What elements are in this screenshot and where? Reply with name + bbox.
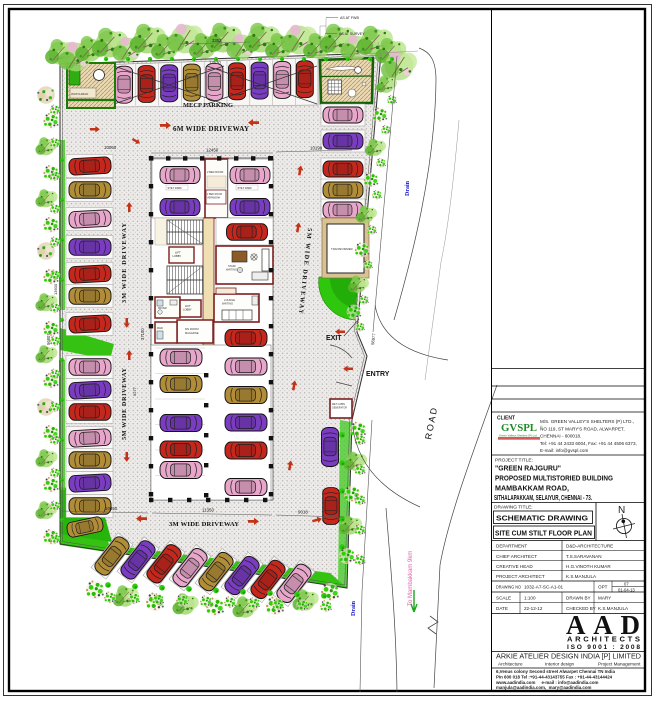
svg-text:5M WIDE DRIVEWAY: 5M WIDE DRIVEWAY <box>121 367 128 440</box>
svg-text:DEPARTMENT: DEPARTMENT <box>496 544 527 549</box>
svg-text:K.S.MANJULA: K.S.MANJULA <box>566 574 597 579</box>
svg-text:WAITING: WAITING <box>222 302 233 306</box>
svg-text:DN ROOM: DN ROOM <box>185 327 199 331</box>
svg-text:M/S. GREEN VALLEY'S SHELTERS: M/S. GREEN VALLEY'S SHELTERS (P) LTD., <box>540 419 634 424</box>
svg-text:3352: 3352 <box>212 38 222 43</box>
svg-text:D&D-ARCHITECTURE: D&D-ARCHITECTURE <box>566 544 613 549</box>
svg-text:T.S.SARAVANAN: T.S.SARAVANAN <box>566 554 602 559</box>
svg-text:11350: 11350 <box>202 508 214 513</box>
svg-text:2 BED ROOM: 2 BED ROOM <box>207 170 223 174</box>
svg-text:ARCHITECTS: ARCHITECTS <box>567 635 640 644</box>
svg-text:9277: 9277 <box>132 386 137 396</box>
svg-text:13500: 13500 <box>53 283 58 295</box>
svg-text:E-mail: info@gvspl.com: E-mail: info@gvspl.com <box>540 448 588 453</box>
svg-text:manjula@aadindia.com, mary@aa: manjula@aadindia.com, mary@aadindia.com <box>496 685 592 690</box>
svg-text:SITE CUM STILT FLOOR PLAN: SITE CUM STILT FLOOR PLAN <box>495 529 592 538</box>
svg-text:CHIEF ARCHITECT: CHIEF ARCHITECT <box>496 554 537 559</box>
svg-text:MAGAZINE: MAGAZINE <box>185 331 199 335</box>
svg-text:STILT PARK: STILT PARK <box>238 186 253 190</box>
svg-text:OPT: OPT <box>598 585 608 590</box>
svg-text:VERANDAH: VERANDAH <box>207 196 221 199</box>
svg-text:LIFT: LIFT <box>175 251 181 255</box>
svg-text:N: N <box>618 505 625 516</box>
svg-text:3M WIDE DRIVEWAY: 3M WIDE DRIVEWAY <box>121 222 128 303</box>
svg-text:CHENNAI - 600018.: CHENNAI - 600018. <box>540 434 581 439</box>
svg-text:STAFF: STAFF <box>228 264 236 268</box>
svg-text:LOBBY: LOBBY <box>173 254 182 258</box>
svg-text:H.G.VINOTH KUMAR: H.G.VINOTH KUMAR <box>566 564 611 569</box>
svg-text:GENERATOR: GENERATOR <box>332 406 347 409</box>
svg-text:DATE: DATE <box>496 606 508 611</box>
svg-text:LIFT: LIFT <box>185 304 191 308</box>
svg-text:LOUNGE: LOUNGE <box>224 298 235 302</box>
svg-text:37100: 37100 <box>140 328 145 340</box>
svg-text:10060: 10060 <box>104 145 117 150</box>
svg-text:Project Management: Project Management <box>598 662 641 667</box>
svg-text:DRAWING TITLE:: DRAWING TITLE: <box>494 505 533 511</box>
svg-text:MAMBAKKAM ROAD,: MAMBAKKAM ROAD, <box>495 484 569 493</box>
svg-text:MECP PARKING: MECP PARKING <box>183 102 233 109</box>
svg-text:Tel: +91 44 2433 6004, Fax: +9: Tel: +91 44 2433 6004, Fax: +91 44 4506 … <box>540 441 637 446</box>
svg-text:10050: 10050 <box>105 506 118 511</box>
svg-text:MAID: MAID <box>157 327 163 330</box>
svg-text:DRAWN BY: DRAWN BY <box>566 596 591 601</box>
svg-text:NO 119, ST MARY'S ROAD, ALWAR: NO 119, ST MARY'S ROAD, ALWARPET, <box>540 426 625 431</box>
svg-text:PROJECT ARCHITECT: PROJECT ARCHITECT <box>496 574 545 579</box>
svg-text:CREATIVE HEAD: CREATIVE HEAD <box>496 564 533 569</box>
svg-text:"GREEN RAJGURU": "GREEN RAJGURU" <box>495 464 561 473</box>
svg-text:WATCHMAN: WATCHMAN <box>71 92 88 96</box>
svg-text:LOBBY: LOBBY <box>183 308 192 312</box>
svg-text:SITHALAPAKKAM, SELAIYUR, CHENN: SITHALAPAKKAM, SELAIYUR, CHENNAI - 73. <box>494 493 592 502</box>
svg-text:Architecture: Architecture <box>498 662 523 667</box>
svg-text:ARKIE ATELIER DESIGN INDIA: ARKIE ATELIER DESIGN INDIA [P] LIMITED <box>496 654 641 661</box>
svg-text:Drain: Drain <box>405 180 411 196</box>
svg-text:9018: 9018 <box>298 510 308 515</box>
svg-text:EXIT: EXIT <box>326 335 342 342</box>
svg-text:MARY: MARY <box>598 596 611 601</box>
svg-text:6,Venus colony Second street: 6,Venus colony Second street Alwarpet Ch… <box>496 669 615 674</box>
svg-text:Green Valleys Shelters (P) Ltd: Green Valleys Shelters (P) Ltd. <box>499 434 538 438</box>
svg-text:CLIENT: CLIENT <box>497 416 515 422</box>
svg-text:12450: 12450 <box>206 148 219 153</box>
svg-text:AS AT FWB: AS AT FWB <box>340 16 359 20</box>
svg-text:Pin 600 018 Tel :+91-44-43143: Pin 600 018 Tel :+91-44-43143755 Fax : +… <box>496 675 613 680</box>
svg-text:56807: 56807 <box>46 333 51 345</box>
svg-text:PROPOSED MULTISTORIED BUILDI: PROPOSED MULTISTORIED BUILDING <box>495 474 613 483</box>
svg-text:DRAWING NO: DRAWING NO <box>496 585 521 590</box>
svg-text:WAITING: WAITING <box>226 267 237 271</box>
svg-text:TRANSFORMER: TRANSFORMER <box>331 247 353 251</box>
svg-text:3M WIDE DRIVEWAY: 3M WIDE DRIVEWAY <box>169 521 239 528</box>
svg-text:1:100: 1:100 <box>524 596 536 601</box>
svg-text:Drain: Drain <box>351 600 357 616</box>
svg-text:To Mambakkam 9km: To Mambakkam 9km <box>408 551 414 606</box>
svg-text:SCHEMATIC DRAWING: SCHEMATIC DRAWING <box>496 514 588 523</box>
svg-text:10199: 10199 <box>310 146 323 151</box>
svg-text:AS AT SURVEY: AS AT SURVEY <box>339 32 365 36</box>
svg-text:07: 07 <box>624 582 629 587</box>
svg-text:GVSPL: GVSPL <box>501 423 537 434</box>
svg-text:SCALE: SCALE <box>496 596 511 601</box>
svg-text:6M WIDE DRIVEWAY: 6M WIDE DRIVEWAY <box>173 125 249 133</box>
svg-text:DRIVER: DRIVER <box>158 308 167 310</box>
svg-text:STILT PARK: STILT PARK <box>168 186 183 190</box>
svg-text:1032-A7-SC-A1-01: 1032-A7-SC-A1-01 <box>524 585 564 590</box>
svg-text:13520: 13520 <box>209 60 221 65</box>
svg-text:ENTRY: ENTRY <box>366 371 390 378</box>
svg-text:22-12-12: 22-12-12 <box>524 606 543 611</box>
svg-text:Interior design: Interior design <box>545 662 575 667</box>
